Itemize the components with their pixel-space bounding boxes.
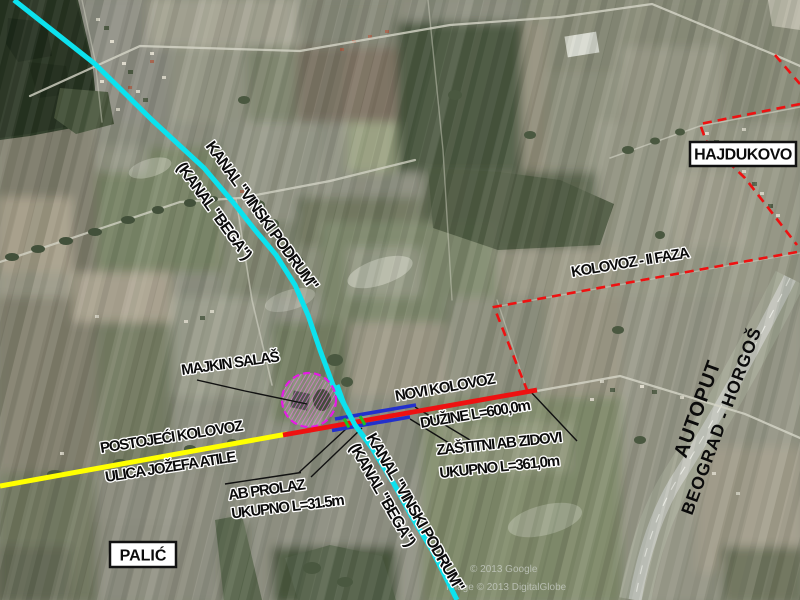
svg-text:HAJDUKOVO: HAJDUKOVO — [694, 147, 792, 164]
svg-text:© 2013 Google: © 2013 Google — [470, 564, 538, 575]
svg-text:PALIĆ: PALIĆ — [120, 546, 167, 565]
